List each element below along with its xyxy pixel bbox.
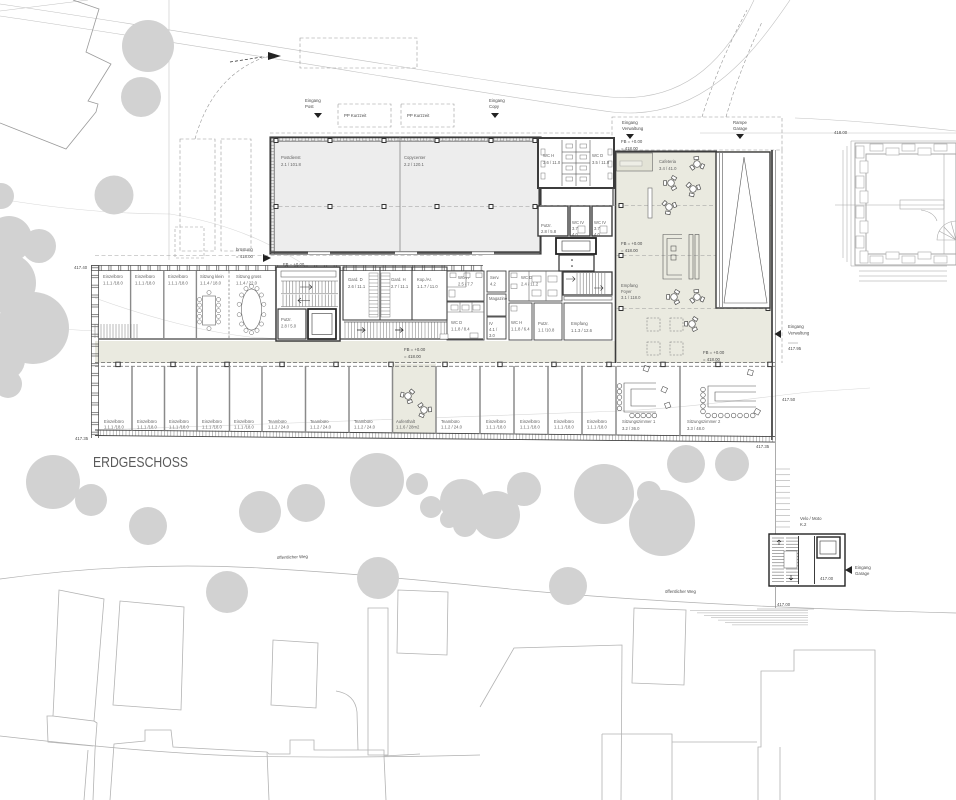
svg-text:4.1 /: 4.1 / [489, 327, 498, 332]
svg-text:Sitzungszimmer 2: Sitzungszimmer 2 [687, 419, 721, 424]
svg-text:WC D: WC D [592, 153, 603, 158]
svg-text:417.35: 417.35 [75, 436, 89, 441]
svg-text:4.2: 4.2 [490, 282, 496, 287]
svg-text:417.35: 417.35 [756, 444, 770, 449]
svg-text:3.4 / 41.0: 3.4 / 41.0 [659, 166, 677, 171]
svg-text:2.2 / 120.1: 2.2 / 120.1 [404, 162, 424, 167]
svg-text:2.1 / 101.8: 2.1 / 101.8 [281, 162, 301, 167]
svg-text:1.1.1 /18.0: 1.1.1 /18.0 [234, 425, 254, 430]
svg-text:ERDGESCHOSS: ERDGESCHOSS [93, 454, 188, 471]
svg-text:1.1.3 / 12.6: 1.1.3 / 12.6 [571, 328, 593, 333]
svg-text:Einzelböro: Einzelböro [103, 274, 123, 279]
svg-text:417.40: 417.40 [74, 265, 88, 270]
svg-text:Copy: Copy [489, 104, 500, 109]
svg-text:Teambüro: Teambüro [354, 419, 373, 424]
svg-text:1.1.1 /18.0: 1.1.1 /18.0 [587, 425, 607, 430]
svg-text:3.3 / 48.0: 3.3 / 48.0 [687, 426, 705, 431]
svg-text:2.8 / 5.0: 2.8 / 5.0 [281, 324, 297, 329]
svg-text:Eingang: Eingang [305, 98, 321, 103]
svg-text:WC H: WC H [511, 320, 522, 325]
svg-text:= 418.00: = 418.00 [621, 146, 638, 151]
svg-text:FB = +0.00: FB = +0.00 [621, 139, 643, 144]
svg-text:Empfang: Empfang [571, 321, 588, 326]
svg-text:Foyer: Foyer [621, 289, 632, 294]
svg-text:417.95: 417.95 [788, 346, 802, 351]
svg-text:Einzelböro: Einzelböro [169, 419, 189, 424]
svg-text:1.1.6 / 28m2: 1.1.6 / 28m2 [396, 425, 420, 430]
svg-text:1.1.1 /18.0: 1.1.1 /18.0 [168, 281, 188, 286]
svg-text:Kop./Ar.: Kop./Ar. [417, 277, 432, 282]
svg-text:Einzelböro: Einzelböro [520, 419, 540, 424]
svg-text:1.1.1 /18.0: 1.1.1 /18.0 [104, 425, 124, 430]
svg-text:Einzelböro: Einzelböro [137, 419, 157, 424]
svg-text:FB = +0.00: FB = +0.00 [404, 347, 426, 352]
svg-text:417.00: 417.00 [777, 602, 791, 607]
svg-text:brüstung: brüstung [236, 247, 253, 252]
svg-text:1.1.1 /18.0: 1.1.1 /18.0 [135, 281, 155, 286]
svg-text:1.1.1 /18.0: 1.1.1 /18.0 [202, 425, 222, 430]
svg-text:Einzelböro: Einzelböro [587, 419, 607, 424]
svg-text:1.1.2 / 24.0: 1.1.2 / 24.0 [354, 425, 376, 430]
svg-text:Aufenthalt: Aufenthalt [396, 419, 416, 424]
svg-text:3.5 / 11.0: 3.5 / 11.0 [592, 160, 610, 165]
svg-text:417.50: 417.50 [782, 397, 796, 402]
svg-text:Teambüro: Teambüro [441, 419, 460, 424]
svg-text:1.1.4 / 22.0: 1.1.4 / 22.0 [236, 281, 258, 286]
svg-text:Einzelböro: Einzelböro [486, 419, 506, 424]
svg-text:417.00: 417.00 [820, 576, 834, 581]
svg-text:4.0: 4.0 [572, 232, 578, 237]
svg-text:1.1.4 / 18.0: 1.1.4 / 18.0 [200, 281, 222, 286]
svg-text:PP Kurzzeit: PP Kurzzeit [407, 113, 430, 118]
svg-text:WC IV: WC IV [594, 220, 606, 225]
svg-text:Postdienst: Postdienst [281, 155, 301, 160]
svg-text:418.00: 418.00 [834, 130, 848, 135]
svg-text:2.6 / 11.1: 2.6 / 11.1 [348, 284, 366, 289]
svg-text:Verwaltung: Verwaltung [788, 331, 810, 336]
svg-text:Putzr.: Putzr. [281, 317, 292, 322]
svg-text:1.1.2 / 24.0: 1.1.2 / 24.0 [441, 425, 463, 430]
svg-text:= 418.00: = 418.00 [404, 354, 421, 359]
svg-text:1.1.1 /18.0: 1.1.1 /18.0 [103, 281, 123, 286]
svg-text:3.1 / 118.0: 3.1 / 118.0 [621, 295, 641, 300]
svg-text:1.1.7 / 11.0: 1.1.7 / 11.0 [417, 284, 438, 289]
svg-text:öffentlicher Weg: öffentlicher Weg [665, 589, 697, 594]
svg-text:Einzelböro: Einzelböro [554, 419, 574, 424]
svg-text:3.6 / 11.0: 3.6 / 11.0 [543, 160, 561, 165]
svg-text:Sitzung klein: Sitzung klein [200, 274, 224, 279]
svg-text:1.1.8 / 6.4: 1.1.8 / 6.4 [511, 327, 530, 332]
svg-text:= 418.00: = 418.00 [236, 254, 253, 259]
svg-text:Copycenter: Copycenter [404, 155, 426, 160]
svg-text:1.1.2 / 24.0: 1.1.2 / 24.0 [268, 425, 290, 430]
svg-text:1.1.1 /18.0: 1.1.1 /18.0 [169, 425, 189, 430]
svg-text:3.0: 3.0 [489, 333, 495, 338]
svg-text:Putzr.: Putzr. [541, 223, 552, 228]
svg-text:4.0: 4.0 [594, 232, 600, 237]
svg-text:IV: IV [489, 321, 493, 326]
svg-text:WC IV: WC IV [572, 220, 584, 225]
svg-text:Sitzungszimmer 1: Sitzungszimmer 1 [622, 419, 656, 424]
svg-text:Rampe: Rampe [733, 120, 747, 125]
svg-text:Magazine: Magazine [489, 296, 508, 301]
svg-text:Eingang: Eingang [489, 98, 505, 103]
svg-text:1.1.1 /18.0: 1.1.1 /18.0 [137, 425, 157, 430]
svg-text:K.2: K.2 [800, 522, 807, 527]
svg-text:FB = +0.00: FB = +0.00 [621, 241, 643, 246]
svg-text:= 418.00: = 418.00 [703, 357, 720, 362]
svg-text:Einzelbüro: Einzelbüro [135, 274, 155, 279]
svg-text:Post: Post [305, 104, 314, 109]
svg-text:1.1 /10.8: 1.1 /10.8 [538, 328, 555, 333]
svg-text:Velo / Moto: Velo / Moto [800, 516, 822, 521]
svg-text:Eingang: Eingang [855, 565, 871, 570]
svg-text:Cafeteria: Cafeteria [659, 159, 677, 164]
svg-text:Gard. D: Gard. D [348, 277, 363, 282]
svg-text:1.1.8 / 8.4: 1.1.8 / 8.4 [451, 327, 470, 332]
svg-text:Eingang: Eingang [622, 120, 638, 125]
svg-text:Teambüro: Teambüro [310, 419, 329, 424]
svg-text:Einzelböro: Einzelböro [234, 419, 254, 424]
svg-text:Putzr.: Putzr. [538, 321, 549, 326]
svg-text:2.8 / 5.8: 2.8 / 5.8 [541, 229, 557, 234]
svg-text:Teambüro: Teambüro [268, 419, 287, 424]
svg-text:= 418.00: = 418.00 [621, 248, 638, 253]
svg-text:1.1.2 / 24.0: 1.1.2 / 24.0 [310, 425, 332, 430]
svg-text:3.2 / 36.0: 3.2 / 36.0 [622, 426, 640, 431]
svg-text:Verwaltung: Verwaltung [622, 126, 644, 131]
svg-text:WC H: WC H [543, 153, 554, 158]
svg-text:1.1.1 /18.0: 1.1.1 /18.0 [486, 425, 506, 430]
svg-text:Einzelböro: Einzelböro [104, 419, 124, 424]
svg-text:2.4 / 11.2: 2.4 / 11.2 [521, 282, 539, 287]
svg-text:WC D: WC D [521, 275, 532, 280]
svg-text:Einzelböro: Einzelböro [202, 419, 222, 424]
svg-text:Gard. H: Gard. H [391, 277, 406, 282]
svg-text:1.1.1 /18.0: 1.1.1 /18.0 [520, 425, 540, 430]
svg-text:Sitzung gross: Sitzung gross [236, 274, 261, 279]
svg-text:Eingang: Eingang [788, 324, 804, 329]
svg-text:1.1.1 /18.0: 1.1.1 /18.0 [554, 425, 574, 430]
svg-text:Einzelbüro: Einzelbüro [168, 274, 188, 279]
svg-text:PP Kurzzeit: PP Kurzzeit [344, 113, 367, 118]
svg-text:WC D: WC D [451, 320, 462, 325]
svg-text:Serv.: Serv. [490, 275, 500, 280]
svg-text:Garage: Garage [855, 571, 870, 576]
svg-text:2.7 / 11.1: 2.7 / 11.1 [391, 284, 409, 289]
svg-text:Empfang: Empfang [621, 283, 638, 288]
svg-text:FB = +0.00: FB = +0.00 [703, 350, 725, 355]
svg-text:Garage: Garage [733, 126, 748, 131]
